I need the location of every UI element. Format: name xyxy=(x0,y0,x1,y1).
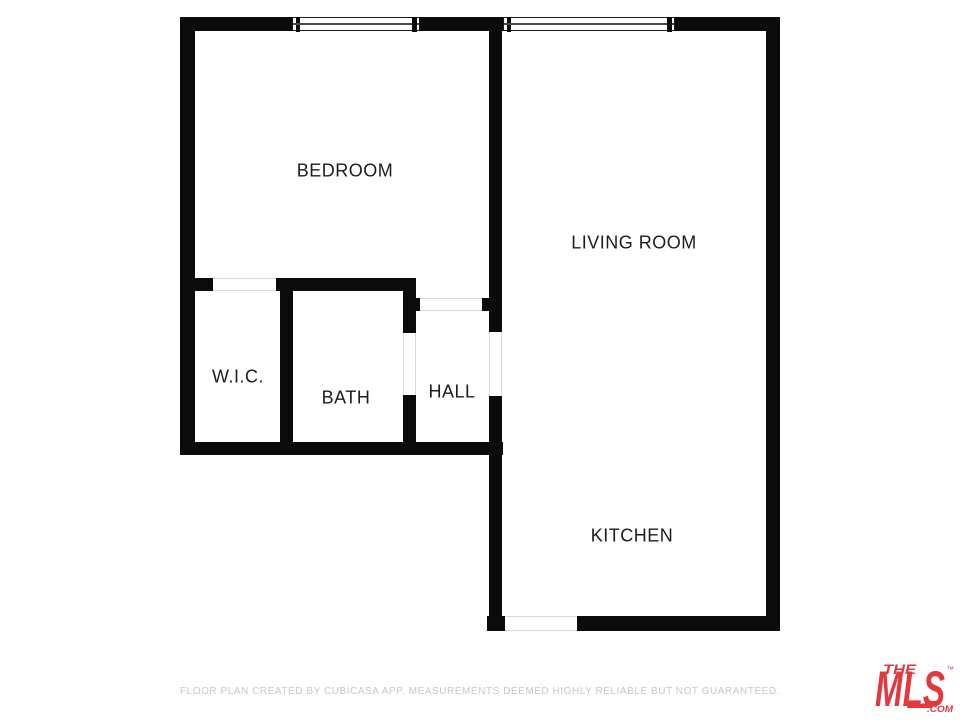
wall-left xyxy=(180,17,195,455)
floor-plan-canvas: BEDROOM LIVING ROOM W.I.C. BATH HALL KIT… xyxy=(0,0,960,720)
door-opening-kitchen-entry xyxy=(505,616,577,631)
room-label-bath: BATH xyxy=(322,388,371,409)
window-cap-icon xyxy=(667,17,672,32)
window-icon-bedroom xyxy=(292,17,420,31)
window-cap-icon xyxy=(412,17,417,32)
door-opening-hall-living xyxy=(489,332,502,396)
door-opening-bath xyxy=(403,333,416,395)
logo-com-text: .COM xyxy=(927,704,954,714)
room-label-kitchen: KITCHEN xyxy=(591,526,674,547)
door-opening-hall-bedroom xyxy=(420,298,482,311)
door-opening-wic xyxy=(213,278,276,291)
wall-top xyxy=(180,17,780,31)
room-label-hall: HALL xyxy=(428,382,475,403)
wall-wic-bath-divider xyxy=(280,278,293,455)
room-label-living-room: LIVING ROOM xyxy=(571,233,697,254)
window-icon-living-room xyxy=(503,17,675,31)
wall-bottom-left-section xyxy=(180,442,503,455)
wall-bath-right-lower xyxy=(403,395,416,455)
disclaimer-text: FLOOR PLAN CREATED BY CUBICASA APP. MEAS… xyxy=(0,686,960,697)
wall-hall-door-stub-left xyxy=(403,298,420,311)
wall-hall-door-stub-right xyxy=(482,298,502,311)
wall-right xyxy=(766,17,780,631)
themls-logo: THE MLS ™ .COM xyxy=(874,656,956,714)
window-midline xyxy=(504,23,674,25)
wall-bedroom-bottom xyxy=(276,278,416,291)
wall-kitchen-bottom-right xyxy=(577,616,780,631)
wall-bedroom-bottom-stub xyxy=(180,278,213,291)
window-midline xyxy=(293,23,419,25)
logo-trademark-text: ™ xyxy=(946,665,954,674)
wall-divider-lower xyxy=(489,396,502,631)
wall-divider-upper xyxy=(489,17,502,332)
room-label-wic: W.I.C. xyxy=(212,367,264,388)
room-label-bedroom: BEDROOM xyxy=(297,161,394,182)
